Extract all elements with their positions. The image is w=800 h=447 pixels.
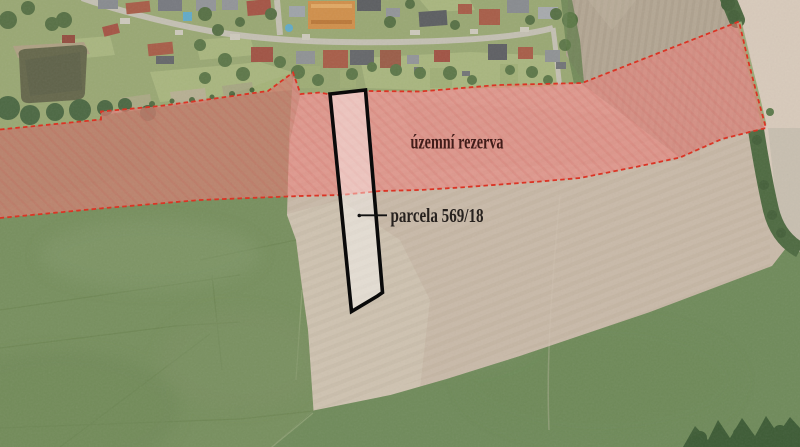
svg-text:parcela 569/18: parcela 569/18 xyxy=(391,206,484,227)
svg-text:územní rezerva: územní rezerva xyxy=(411,129,504,153)
